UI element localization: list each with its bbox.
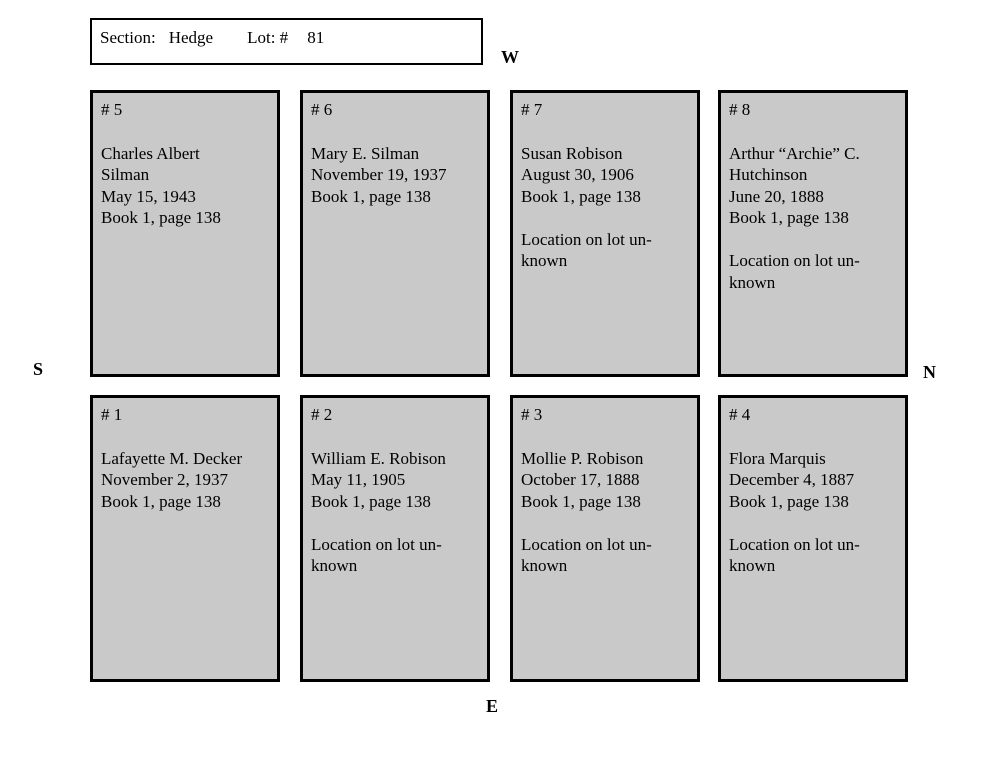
plot-3: # 3 Mollie P. Robison October 17, 1888 B… [510, 395, 700, 682]
plot-body: Flora Marquis December 4, 1887 Book 1, p… [729, 448, 897, 577]
section-label: Section: [100, 28, 156, 47]
compass-west-label: W [501, 48, 519, 66]
plot-body: Mollie P. Robison October 17, 1888 Book … [521, 448, 689, 577]
plot-number: # 2 [311, 404, 479, 426]
compass-east-label: E [486, 697, 498, 715]
plot-5: # 5 Charles Albert Silman May 15, 1943 B… [90, 90, 280, 377]
plot-number: # 6 [311, 99, 479, 121]
plot-body: Mary E. Silman November 19, 1937 Book 1,… [311, 143, 479, 208]
compass-north-label: N [923, 363, 936, 381]
compass-south-label: S [33, 360, 43, 378]
plot-body: Lafayette M. Decker November 2, 1937 Boo… [101, 448, 269, 513]
plot-8: # 8 Arthur “Archie” C. Hutchinson June 2… [718, 90, 908, 377]
plot-body: Charles Albert Silman May 15, 1943 Book … [101, 143, 269, 229]
plot-2: # 2 William E. Robison May 11, 1905 Book… [300, 395, 490, 682]
lot-label: Lot: # [247, 28, 288, 47]
plot-number: # 8 [729, 99, 897, 121]
plot-number: # 3 [521, 404, 689, 426]
plot-body: Arthur “Archie” C. Hutchinson June 20, 1… [729, 143, 897, 294]
cemetery-lot-diagram: Section:HedgeLot: #81 W S N E # 5 Charle… [0, 0, 1000, 773]
plot-7: # 7 Susan Robison August 30, 1906 Book 1… [510, 90, 700, 377]
plot-number: # 5 [101, 99, 269, 121]
lot-value: 81 [307, 28, 324, 47]
plot-4: # 4 Flora Marquis December 4, 1887 Book … [718, 395, 908, 682]
plot-6: # 6 Mary E. Silman November 19, 1937 Boo… [300, 90, 490, 377]
section-lot-header: Section:HedgeLot: #81 [90, 18, 483, 65]
plot-body: Susan Robison August 30, 1906 Book 1, pa… [521, 143, 689, 272]
plot-number: # 4 [729, 404, 897, 426]
plot-number: # 1 [101, 404, 269, 426]
plot-1: # 1 Lafayette M. Decker November 2, 1937… [90, 395, 280, 682]
plot-number: # 7 [521, 99, 689, 121]
plot-body: William E. Robison May 11, 1905 Book 1, … [311, 448, 479, 577]
section-value: Hedge [169, 28, 213, 47]
